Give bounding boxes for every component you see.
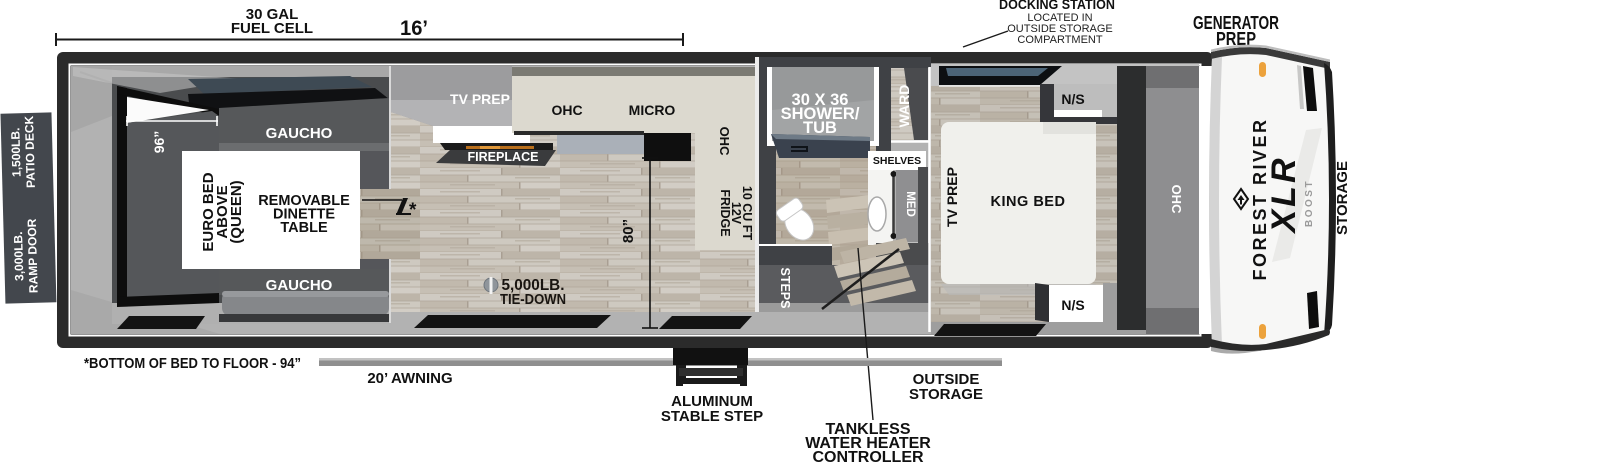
svg-text:GAUCHO: GAUCHO: [266, 277, 333, 294]
svg-text:SHELVES: SHELVES: [873, 155, 921, 167]
svg-text:STORAGE: STORAGE: [1334, 161, 1351, 235]
svg-text:(QUEEN): (QUEEN): [228, 180, 245, 243]
svg-text:MICRO: MICRO: [629, 102, 676, 118]
svg-text:GAUCHO: GAUCHO: [266, 125, 333, 142]
svg-text:MED: MED: [904, 191, 916, 217]
svg-text:16’: 16’: [400, 17, 428, 40]
svg-text:WARD: WARD: [896, 85, 912, 128]
svg-text:OHC: OHC: [1169, 185, 1184, 215]
svg-text:3,000LB.: 3,000LB.: [11, 231, 26, 281]
svg-text:80”: 80”: [620, 219, 637, 243]
svg-text:TIE-DOWN: TIE-DOWN: [500, 292, 566, 308]
svg-text:CONTROLLER: CONTROLLER: [812, 449, 924, 465]
svg-text:OHC: OHC: [551, 102, 582, 118]
svg-text:FUEL CELL: FUEL CELL: [231, 20, 313, 37]
svg-text:N/S: N/S: [1061, 91, 1084, 107]
svg-text:RAMP DOOR: RAMP DOOR: [25, 218, 41, 293]
svg-text:BOOST: BOOST: [1304, 179, 1315, 227]
svg-text:FIREPLACE: FIREPLACE: [468, 150, 539, 164]
svg-text:TABLE: TABLE: [280, 220, 328, 236]
svg-text:KING BED: KING BED: [991, 194, 1066, 210]
svg-text:STORAGE: STORAGE: [909, 386, 983, 403]
svg-text:PATIO DECK: PATIO DECK: [22, 115, 38, 188]
svg-text:DOCKING STATION: DOCKING STATION: [999, 0, 1115, 12]
svg-text:STEPS: STEPS: [778, 268, 792, 309]
svg-text:TV PREP: TV PREP: [450, 91, 510, 107]
svg-text:COMPARTMENT: COMPARTMENT: [1017, 34, 1102, 46]
svg-text:TV PREP: TV PREP: [944, 167, 960, 227]
svg-text:1,500LB.: 1,500LB.: [8, 127, 23, 177]
svg-text:*BOTTOM OF BED TO FLOOR - 94”: *BOTTOM OF BED TO FLOOR - 94”: [84, 355, 301, 372]
svg-text:XLR: XLR: [1265, 156, 1303, 235]
svg-text:OHC: OHC: [717, 127, 732, 157]
svg-text:N/S: N/S: [1061, 297, 1084, 313]
svg-text:FRIDGE: FRIDGE: [718, 189, 732, 236]
svg-text:20’ AWNING: 20’ AWNING: [367, 370, 452, 387]
svg-text:STABLE STEP: STABLE STEP: [661, 408, 763, 425]
svg-text:*: *: [409, 200, 417, 221]
svg-text:96”: 96”: [151, 131, 167, 154]
svg-text:TUB: TUB: [803, 119, 837, 137]
